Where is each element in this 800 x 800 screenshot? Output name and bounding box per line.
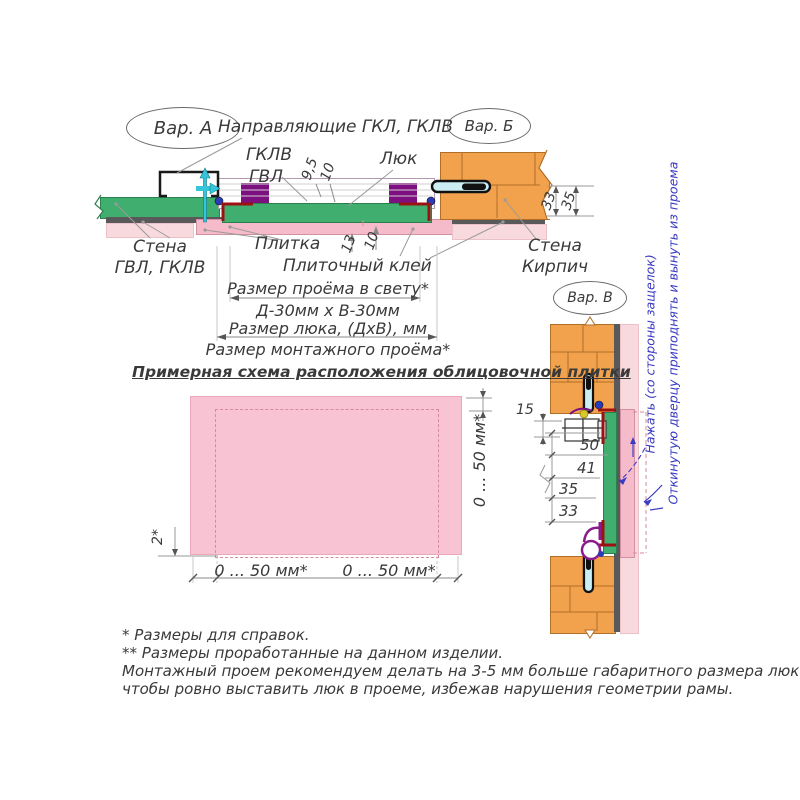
size-row-opening-clear: Размер проёма в свету* — [178, 279, 478, 298]
tile-scheme-dim-right: 0 ... 50 мм* — [470, 413, 489, 508]
v-dim-50: 50 — [580, 436, 599, 454]
label-wall-left: Стена ГВЛ, ГКЛВ — [105, 237, 215, 279]
left-drywall-layer — [100, 197, 220, 219]
variant-v-bubble: Вар. В — [553, 281, 627, 315]
v-door-panel — [603, 412, 617, 554]
variant-a-label: Вар. А — [154, 118, 213, 139]
size-row-formula: Д-30мм х В-30мм — [178, 301, 478, 320]
left-finish-tile-layer — [106, 223, 194, 238]
footnote-2: ** Размеры проработанные на данном издел… — [122, 644, 503, 662]
variant-b-label: Вар. Б — [465, 117, 514, 135]
label-tile-glue: Плиточный клей — [283, 256, 432, 276]
technical-drawing-canvas: Вар. А Вар. Б Вар. В Направляющие ГКЛ, Г… — [0, 0, 800, 800]
label-wall-right-line2: Кирпич — [512, 257, 598, 278]
v-note-remove: Откинутую дверцу приподнять и вынуть из … — [666, 215, 681, 505]
label-tile: Плитка — [255, 234, 320, 254]
size-row-hatch-size: Размер люка, (ДхВ), мм — [178, 319, 478, 338]
brick-wall-top — [440, 152, 550, 220]
footnote-3: Монтажный проем рекомендуем делать на 3-… — [122, 662, 800, 680]
v-dim-35: 35 — [559, 480, 578, 498]
tile-scheme-dim-left: 2* — [150, 522, 166, 552]
v-brick-wall-lower — [550, 556, 616, 634]
variant-b-bubble: Вар. Б — [447, 108, 531, 144]
c-profile-guide-icon — [160, 172, 218, 197]
arrow-cyan-icon — [196, 186, 210, 191]
v-dim-41: 41 — [577, 459, 596, 477]
footnote-4: чтобы ровно выставить люк в проеме, избе… — [122, 680, 733, 698]
label-wall-right-line1: Стена — [512, 236, 598, 257]
latch-icon — [582, 522, 604, 559]
label-hatch: Люк — [380, 149, 417, 169]
label-gklv: ГКЛВ — [246, 145, 292, 165]
label-wall-right: Стена Кирпич — [512, 236, 598, 278]
tile-scheme-dim-bottom-right: 0 ... 50 мм* — [314, 561, 464, 580]
hatch-door-panel — [222, 203, 432, 223]
v-door-tile — [620, 409, 635, 558]
tile-scheme-hatch-dashed-outline — [215, 409, 439, 558]
footnote-1: * Размеры для справок. — [122, 626, 310, 644]
tile-scheme-title: Примерная схема расположения облицовочно… — [132, 363, 631, 381]
v-note-press: Нажать (со стороны защелок) — [643, 276, 658, 454]
frame-purple-block-right — [389, 183, 417, 204]
variant-v-label: Вар. В — [567, 290, 613, 306]
v-dim-15: 15 — [516, 402, 534, 418]
v-dim-33: 33 — [559, 502, 578, 520]
label-guides: Направляющие ГКЛ, ГКЛВ — [218, 117, 453, 137]
label-gvl: ГВЛ — [249, 167, 283, 187]
label-wall-left-line1: Стена — [105, 237, 215, 258]
label-wall-left-line2: ГВЛ, ГКЛВ — [105, 258, 215, 279]
size-row-mounting-opening: Размер монтажного проёма* — [178, 340, 478, 359]
